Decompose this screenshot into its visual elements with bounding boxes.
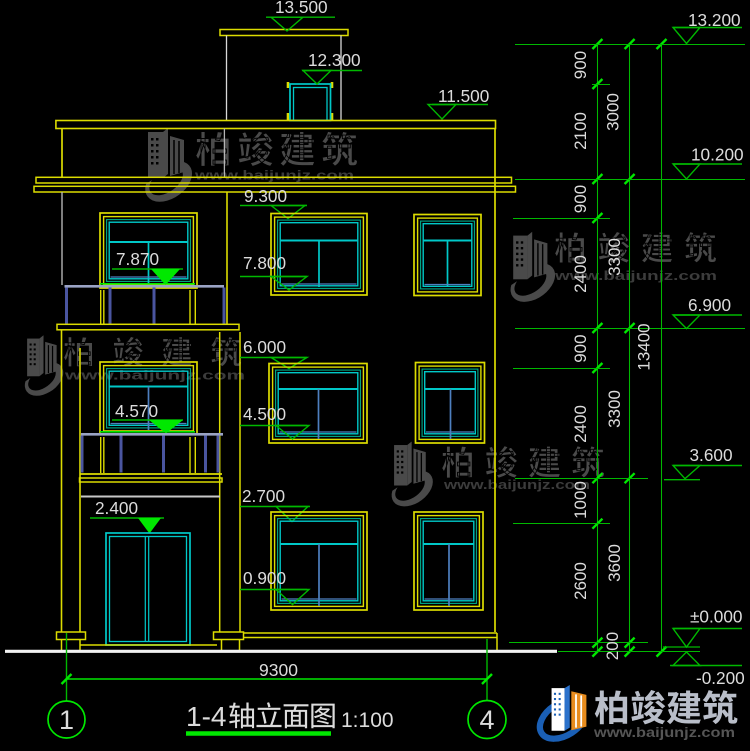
svg-text:4: 4 <box>479 705 494 735</box>
svg-text:6.900: 6.900 <box>688 295 731 315</box>
svg-text:0.900: 0.900 <box>243 568 286 588</box>
svg-text:6.000: 6.000 <box>243 337 286 357</box>
svg-text:9300: 9300 <box>259 660 298 680</box>
svg-text:900: 900 <box>571 51 590 79</box>
svg-text:7.800: 7.800 <box>243 253 286 273</box>
svg-text:900: 900 <box>571 185 590 213</box>
svg-text:1: 1 <box>59 705 74 735</box>
svg-text:9.300: 9.300 <box>244 186 287 206</box>
svg-text:2600: 2600 <box>571 562 590 600</box>
svg-text:1-4: 1-4 <box>186 701 226 732</box>
svg-text:3300: 3300 <box>605 390 624 428</box>
svg-text:7.870: 7.870 <box>116 249 159 269</box>
svg-text:4.570: 4.570 <box>115 401 158 421</box>
svg-text:www.baijunjz.com: www.baijunjz.com <box>443 478 590 492</box>
svg-text:3000: 3000 <box>604 93 623 131</box>
svg-text:±0.000: ±0.000 <box>690 607 742 627</box>
svg-text:12.300: 12.300 <box>308 50 361 70</box>
svg-text:200: 200 <box>603 632 622 660</box>
svg-text:10.200: 10.200 <box>691 145 744 165</box>
svg-text:1000: 1000 <box>571 481 590 519</box>
svg-text:2100: 2100 <box>571 112 590 150</box>
svg-text:1:100: 1:100 <box>341 709 394 732</box>
svg-text:www.baijunjz.com: www.baijunjz.com <box>593 725 735 740</box>
svg-text:-0.200: -0.200 <box>696 668 745 688</box>
svg-text:3600: 3600 <box>605 544 624 582</box>
svg-text:2.400: 2.400 <box>95 498 138 518</box>
svg-text:www.baijunjz.com: www.baijunjz.com <box>194 169 354 183</box>
svg-text:900: 900 <box>571 334 590 362</box>
svg-text:2400: 2400 <box>571 255 590 293</box>
svg-text:13400: 13400 <box>635 323 654 370</box>
svg-text:13.500: 13.500 <box>275 0 328 17</box>
svg-text:3300: 3300 <box>605 238 624 276</box>
svg-text:2.700: 2.700 <box>242 486 285 506</box>
svg-text:11.500: 11.500 <box>438 86 489 106</box>
svg-text:3.600: 3.600 <box>690 445 733 465</box>
svg-text:4.500: 4.500 <box>243 404 286 424</box>
svg-text:2400: 2400 <box>571 405 590 443</box>
